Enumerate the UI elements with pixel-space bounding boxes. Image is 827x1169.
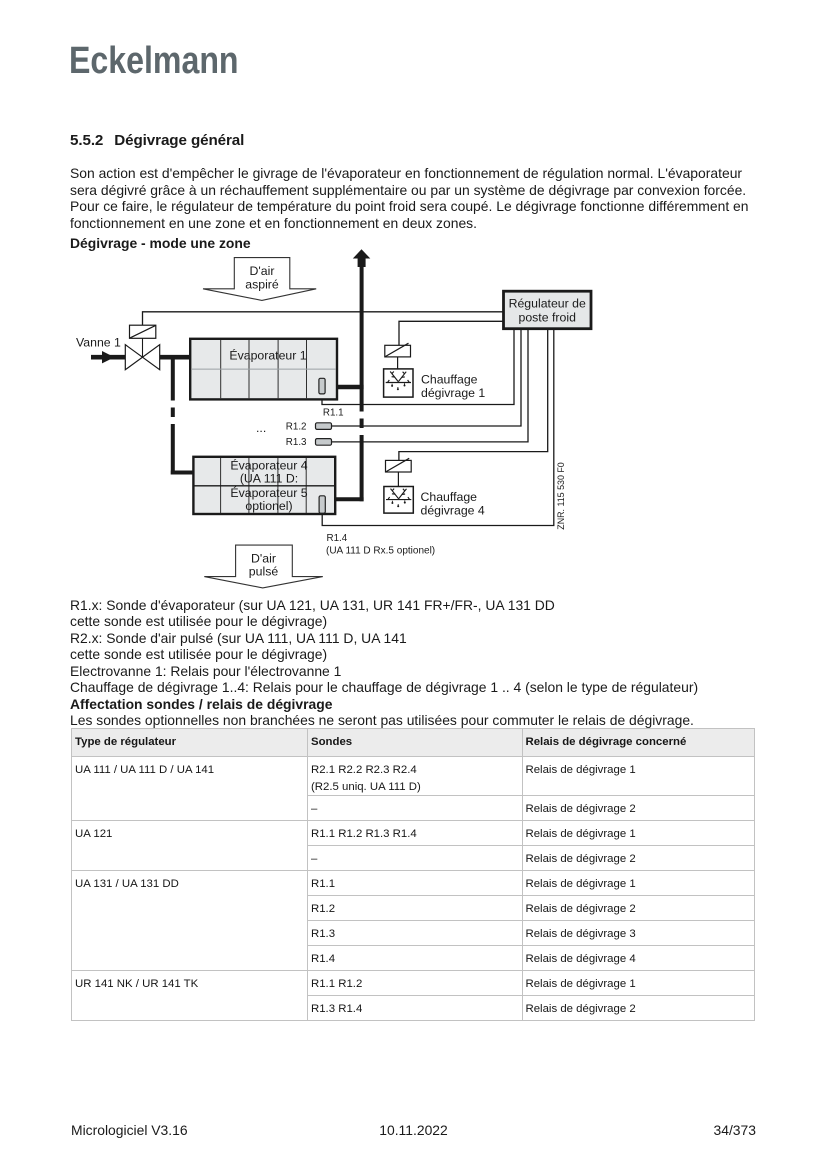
svg-text:D'air: D'air bbox=[251, 552, 276, 566]
svg-text:aspiré: aspiré bbox=[245, 278, 279, 292]
svg-text:...: ... bbox=[256, 421, 266, 435]
svg-text:R1.2: R1.2 bbox=[286, 422, 307, 433]
svg-text:Vanne 1: Vanne 1 bbox=[76, 336, 121, 350]
svg-text:dégivrage 1: dégivrage 1 bbox=[421, 386, 485, 400]
svg-text:R1.4: R1.4 bbox=[327, 533, 348, 544]
svg-text:poste froid: poste froid bbox=[518, 311, 576, 325]
svg-text:dégivrage 4: dégivrage 4 bbox=[421, 504, 485, 518]
svg-text:optionel): optionel) bbox=[245, 499, 292, 513]
svg-text:Régulateur de: Régulateur de bbox=[509, 297, 586, 311]
svg-text:R1.3: R1.3 bbox=[286, 437, 307, 448]
svg-text:(UA 111 D Rx.5 optionel): (UA 111 D Rx.5 optionel) bbox=[326, 545, 435, 556]
svg-text:(UA 111 D:: (UA 111 D: bbox=[240, 472, 298, 486]
svg-text:Chauffage: Chauffage bbox=[421, 490, 478, 504]
svg-text:D'air: D'air bbox=[250, 264, 275, 278]
svg-text:pulsé: pulsé bbox=[249, 565, 279, 579]
svg-text:R1.1: R1.1 bbox=[323, 407, 344, 418]
svg-text:Évaporateur 1: Évaporateur 1 bbox=[229, 348, 306, 363]
svg-text:Évaporateur 5: Évaporateur 5 bbox=[230, 485, 307, 500]
svg-text:ZNR. 115 530 F0: ZNR. 115 530 F0 bbox=[556, 462, 566, 529]
svg-text:Évaporateur 4: Évaporateur 4 bbox=[230, 457, 307, 472]
svg-text:Chauffage: Chauffage bbox=[421, 373, 478, 387]
